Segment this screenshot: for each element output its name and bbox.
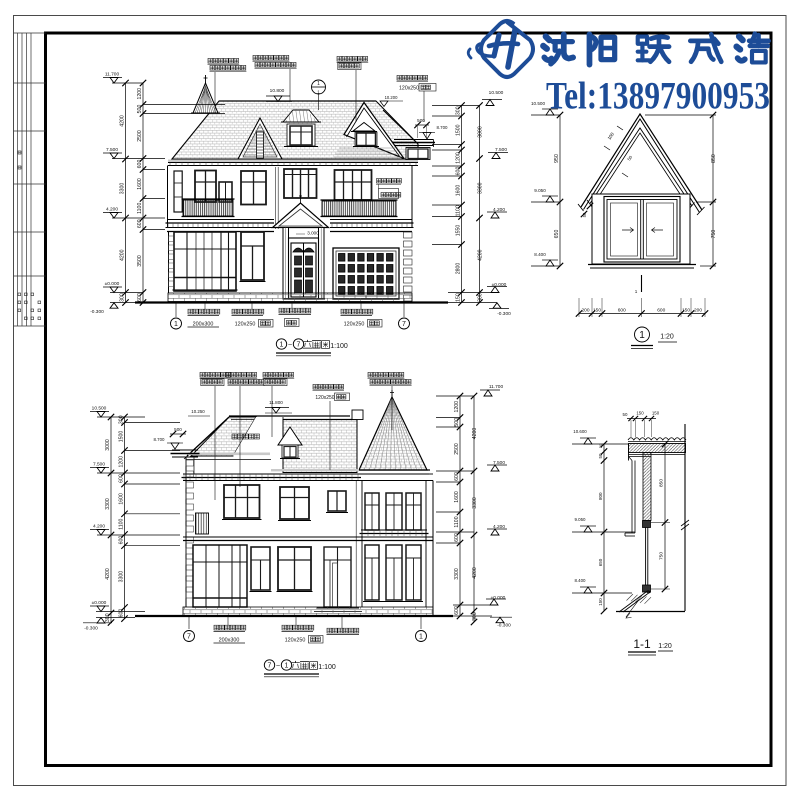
svg-text:1600: 1600 bbox=[118, 493, 124, 505]
svg-text:850: 850 bbox=[659, 479, 665, 487]
svg-text:3000: 3000 bbox=[478, 126, 484, 138]
svg-text:1:20: 1:20 bbox=[660, 334, 674, 341]
svg-text:1:100: 1:100 bbox=[330, 343, 348, 350]
svg-text:120x250: 120x250 bbox=[344, 322, 365, 328]
svg-text:1200: 1200 bbox=[455, 152, 461, 164]
svg-text:200x300: 200x300 bbox=[193, 322, 214, 328]
svg-text:600: 600 bbox=[118, 609, 124, 618]
svg-text:3300: 3300 bbox=[119, 183, 125, 195]
svg-text:1: 1 bbox=[317, 81, 320, 87]
svg-text:120x250: 120x250 bbox=[399, 86, 419, 92]
svg-text:3300: 3300 bbox=[472, 497, 478, 509]
svg-text:3500: 3500 bbox=[137, 255, 143, 267]
svg-text:11.800: 11.800 bbox=[269, 400, 283, 405]
svg-text:1200: 1200 bbox=[118, 456, 124, 468]
svg-text:150: 150 bbox=[455, 293, 461, 302]
svg-text:10.500: 10.500 bbox=[531, 101, 545, 106]
svg-text:1100: 1100 bbox=[137, 203, 143, 214]
svg-text:1:20: 1:20 bbox=[658, 643, 672, 650]
svg-text:11.700: 11.700 bbox=[489, 384, 504, 390]
svg-text:800: 800 bbox=[598, 492, 603, 500]
svg-text:600: 600 bbox=[657, 308, 665, 314]
svg-text:9.050: 9.050 bbox=[534, 188, 546, 193]
svg-text:1: 1 bbox=[174, 321, 178, 328]
svg-text:9.050: 9.050 bbox=[575, 517, 587, 522]
svg-text:Tel:13897900953: Tel:13897900953 bbox=[546, 75, 770, 118]
svg-text:150: 150 bbox=[598, 598, 603, 606]
svg-text:1100: 1100 bbox=[118, 518, 124, 529]
svg-text:~: ~ bbox=[288, 342, 292, 349]
svg-text:1: 1 bbox=[635, 289, 638, 294]
svg-text:1100: 1100 bbox=[454, 516, 460, 527]
svg-text:150: 150 bbox=[636, 411, 644, 416]
svg-text:600: 600 bbox=[454, 606, 460, 615]
svg-text:600: 600 bbox=[118, 474, 124, 483]
svg-text:50: 50 bbox=[598, 453, 603, 459]
svg-text:±0.000: ±0.000 bbox=[492, 282, 507, 288]
svg-text:1600: 1600 bbox=[137, 178, 143, 190]
svg-text:50: 50 bbox=[599, 444, 603, 448]
svg-text:120x250: 120x250 bbox=[235, 322, 256, 328]
svg-text:300: 300 bbox=[472, 612, 478, 621]
svg-text:2500: 2500 bbox=[454, 443, 460, 455]
svg-text:7: 7 bbox=[187, 634, 191, 641]
svg-text:600: 600 bbox=[454, 472, 460, 481]
svg-text:7.500: 7.500 bbox=[93, 462, 105, 468]
svg-text:3300: 3300 bbox=[478, 182, 484, 194]
svg-text:300: 300 bbox=[478, 293, 484, 302]
svg-text:10.500: 10.500 bbox=[489, 90, 504, 96]
svg-text:4.200: 4.200 bbox=[93, 524, 105, 530]
svg-text:1: 1 bbox=[419, 634, 423, 641]
svg-text:1-1: 1-1 bbox=[633, 637, 651, 651]
svg-text:1600: 1600 bbox=[454, 491, 460, 503]
svg-text:7.500: 7.500 bbox=[495, 147, 507, 153]
svg-text:3300: 3300 bbox=[105, 498, 111, 510]
svg-text:10.600: 10.600 bbox=[573, 429, 587, 434]
svg-text:50: 50 bbox=[623, 412, 628, 417]
svg-text:2800: 2800 bbox=[455, 263, 461, 275]
svg-text:600: 600 bbox=[137, 219, 143, 228]
svg-text:850: 850 bbox=[711, 154, 717, 163]
svg-text:10.250: 10.250 bbox=[191, 409, 205, 414]
svg-text:10.500: 10.500 bbox=[92, 406, 107, 412]
svg-text:1500: 1500 bbox=[455, 124, 461, 136]
svg-text:7: 7 bbox=[268, 663, 272, 670]
svg-text:1600: 1600 bbox=[455, 185, 461, 197]
svg-text:3300: 3300 bbox=[118, 571, 124, 583]
svg-text:200: 200 bbox=[694, 308, 702, 314]
svg-text:8.400: 8.400 bbox=[534, 252, 546, 257]
svg-text:500: 500 bbox=[137, 105, 143, 114]
svg-text:4200: 4200 bbox=[119, 115, 125, 127]
svg-text:300: 300 bbox=[118, 415, 124, 424]
svg-text:7.500: 7.500 bbox=[106, 147, 118, 153]
svg-text:600: 600 bbox=[137, 293, 143, 302]
svg-text:-0.300: -0.300 bbox=[90, 309, 104, 315]
svg-text:8.400: 8.400 bbox=[575, 578, 587, 583]
svg-text:1: 1 bbox=[285, 663, 289, 670]
svg-text:-0.300: -0.300 bbox=[497, 311, 511, 317]
svg-text:4200: 4200 bbox=[105, 568, 111, 580]
svg-text:1: 1 bbox=[639, 330, 645, 341]
svg-text:1: 1 bbox=[280, 342, 284, 349]
svg-text:4.200: 4.200 bbox=[106, 207, 118, 213]
svg-text:1550: 1550 bbox=[455, 225, 461, 237]
svg-text:150: 150 bbox=[682, 308, 690, 314]
svg-text:7: 7 bbox=[297, 342, 301, 349]
svg-text:120x250: 120x250 bbox=[315, 395, 334, 401]
svg-text:300: 300 bbox=[455, 106, 461, 115]
svg-text:1100: 1100 bbox=[455, 205, 461, 216]
svg-text:600: 600 bbox=[137, 160, 143, 169]
svg-text:300: 300 bbox=[119, 293, 125, 302]
svg-text:2500: 2500 bbox=[137, 130, 143, 142]
svg-text:-0.300: -0.300 bbox=[497, 623, 511, 629]
svg-text:650: 650 bbox=[598, 558, 603, 566]
svg-text:10.800: 10.800 bbox=[270, 88, 285, 94]
svg-text:500: 500 bbox=[454, 418, 460, 427]
svg-text:7: 7 bbox=[402, 321, 406, 328]
svg-text:950: 950 bbox=[554, 154, 560, 163]
svg-text:200x300: 200x300 bbox=[219, 638, 240, 644]
svg-text:200: 200 bbox=[581, 308, 589, 314]
svg-text:4200: 4200 bbox=[472, 428, 478, 440]
svg-text:8.700: 8.700 bbox=[154, 437, 166, 442]
svg-text:600: 600 bbox=[454, 533, 460, 542]
svg-text:650: 650 bbox=[554, 230, 560, 239]
svg-text:10.200: 10.200 bbox=[385, 95, 398, 100]
svg-text:±0.000: ±0.000 bbox=[105, 281, 120, 287]
svg-text:3000: 3000 bbox=[105, 439, 111, 451]
svg-text:1200: 1200 bbox=[137, 88, 143, 100]
svg-text:1200: 1200 bbox=[454, 401, 460, 413]
svg-text:600: 600 bbox=[618, 308, 626, 314]
svg-text:±0.000: ±0.000 bbox=[92, 600, 107, 606]
svg-text:750: 750 bbox=[711, 230, 717, 239]
svg-text:4200: 4200 bbox=[119, 249, 125, 261]
svg-text:1:100: 1:100 bbox=[318, 664, 336, 671]
svg-text:8.700: 8.700 bbox=[437, 125, 449, 130]
svg-text:750: 750 bbox=[659, 552, 665, 560]
svg-text:1500: 1500 bbox=[118, 431, 124, 443]
svg-text:600: 600 bbox=[118, 536, 124, 545]
svg-text:11.700: 11.700 bbox=[105, 72, 120, 78]
svg-text:150: 150 bbox=[593, 308, 601, 314]
svg-text:-0.300: -0.300 bbox=[84, 626, 98, 632]
svg-text:600: 600 bbox=[455, 167, 461, 176]
svg-text:4200: 4200 bbox=[472, 567, 478, 579]
svg-text:4200: 4200 bbox=[478, 249, 484, 261]
svg-text:120x250: 120x250 bbox=[285, 638, 306, 644]
svg-text:3300: 3300 bbox=[454, 568, 460, 580]
svg-text:150: 150 bbox=[652, 411, 660, 416]
svg-text:~: ~ bbox=[276, 663, 280, 670]
svg-text:3.000: 3.000 bbox=[307, 231, 319, 236]
